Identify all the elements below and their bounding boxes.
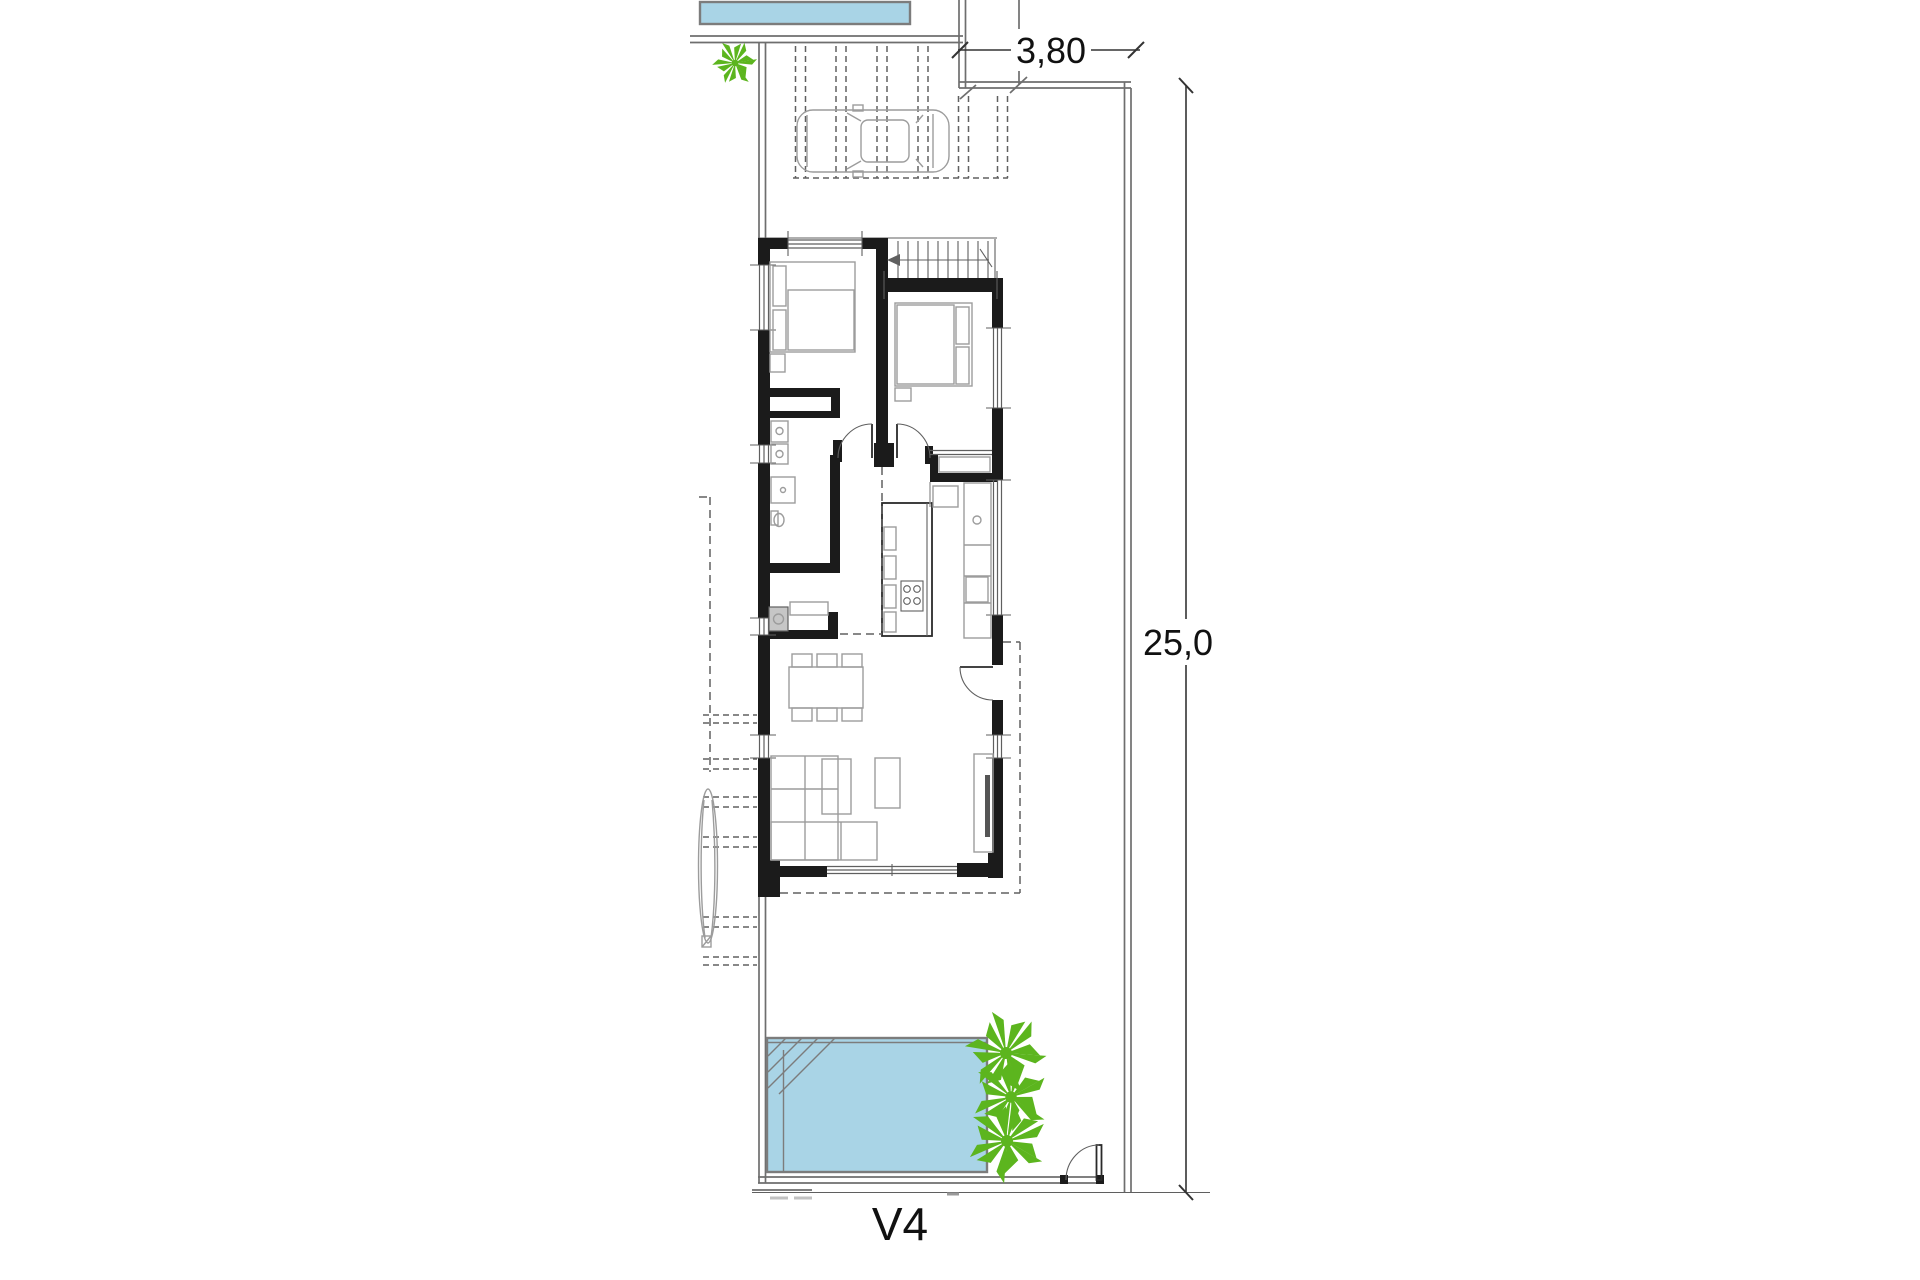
cooktop: [901, 581, 923, 611]
garden-gate-door: [1066, 1145, 1102, 1180]
staircase: [887, 239, 995, 278]
kitchen-counter: [930, 457, 991, 638]
faint-marks: [770, 1194, 959, 1198]
swimming-pool: [767, 1038, 987, 1172]
fridge: [966, 577, 988, 602]
sliding-glass-door: [827, 864, 957, 876]
dining-set: [789, 654, 863, 721]
width-dimension: 3,80: [952, 29, 1144, 71]
width-dimension-label: 3,80: [1016, 30, 1086, 71]
garden-tree: [699, 789, 718, 947]
washer: [769, 607, 788, 631]
laundry: [769, 602, 828, 631]
living-room: [771, 754, 993, 860]
floor-plan-page: 3,80 25,0 V4: [0, 0, 1920, 1280]
bed-1: [770, 262, 855, 372]
entrance-door: [960, 667, 993, 700]
kitchen-sink: [973, 516, 981, 524]
tv-console: [974, 754, 993, 852]
depth-dimension: 25,0: [1141, 78, 1218, 1200]
neighbor-pool: [700, 2, 910, 24]
armchair: [875, 758, 900, 808]
depth-dimension-label: 25,0: [1143, 622, 1213, 663]
kitchen-island: [882, 503, 932, 636]
roof-overhang-lines: [699, 467, 1020, 965]
closet-niche: [939, 457, 990, 472]
unit-label: V4: [872, 1198, 928, 1250]
tv: [985, 775, 990, 837]
dining-table: [789, 667, 863, 708]
carport-pergola: [793, 46, 1008, 178]
house-walls: [758, 238, 1003, 897]
bathroom-fixtures: [771, 421, 795, 527]
car: [797, 105, 949, 177]
bed-2: [895, 303, 972, 401]
terrace-steps: [703, 715, 757, 965]
stairs-direction-arrow: [887, 254, 900, 266]
coffee-table: [822, 759, 851, 814]
hall-door-left: [838, 424, 872, 458]
palm-tree-icon: [712, 41, 757, 85]
wardrobe-wall: [768, 388, 840, 397]
floor-plan-drawing: 3,80 25,0 V4: [0, 0, 1920, 1280]
